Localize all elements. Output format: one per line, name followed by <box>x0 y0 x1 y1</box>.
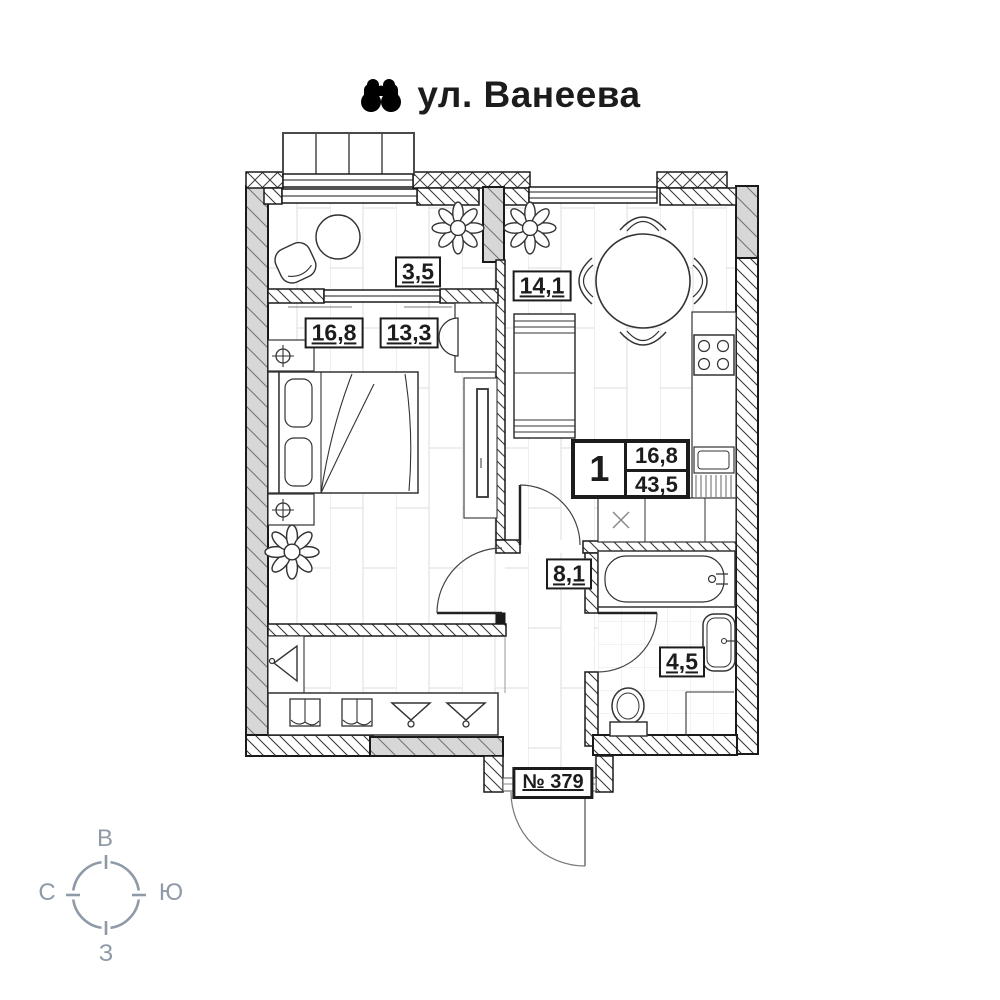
closet-mirror <box>268 636 304 693</box>
dining-table <box>596 234 690 328</box>
page-title-row: ул. Ванеева <box>0 74 1000 116</box>
floor-plan-drawing <box>0 0 1000 1000</box>
bathtub-tap <box>709 576 716 583</box>
tv <box>477 389 488 497</box>
entrance-door <box>511 792 585 866</box>
right-wall <box>736 258 758 754</box>
floor-plan-page: { "header": { "title": "ул. Ванеева", "i… <box>0 0 1000 1000</box>
room-label-hall: 8,1 <box>546 558 592 589</box>
plant-icon <box>504 202 556 254</box>
binoculars-icon <box>359 77 403 113</box>
compass-letter-top: В <box>97 825 113 853</box>
compass-letter-bottom: З <box>99 940 114 968</box>
bed <box>268 372 418 493</box>
bathroom-sink <box>703 614 736 671</box>
apartment-info-box: 1 16,8 43,5 <box>571 439 690 499</box>
room-label-main: 16,8 <box>305 317 364 348</box>
bathtub <box>598 551 735 607</box>
apartment-number-label: № 379 <box>512 767 593 799</box>
left-wall <box>246 186 268 756</box>
kitchen-lower-cabinets <box>598 498 736 542</box>
tv-unit <box>464 378 497 518</box>
loggia-table <box>316 215 360 259</box>
plant-icon <box>432 202 484 254</box>
desk <box>455 303 496 372</box>
toilet <box>610 688 647 736</box>
pillar <box>483 187 504 262</box>
compass-letter-right: Ю <box>159 879 183 907</box>
living-area: 16,8 <box>627 443 686 472</box>
folded-clothes-icon <box>342 699 372 726</box>
room-label-loggia: 3,5 <box>395 256 441 287</box>
pillow <box>285 379 312 427</box>
rooms-count: 1 <box>575 443 627 495</box>
compass-rose <box>66 855 146 935</box>
right-wall-gray <box>736 186 758 258</box>
kitchen-sofa <box>514 314 575 438</box>
page-title: ул. Ванеева <box>417 74 640 116</box>
pillow <box>285 438 312 486</box>
room-label-bathroom: 4,5 <box>659 646 705 677</box>
plant-icon <box>265 525 319 579</box>
room-label-alt: 13,3 <box>380 317 439 348</box>
kitchen-counter <box>692 312 736 499</box>
folded-clothes-icon <box>290 699 320 726</box>
wardrobe <box>268 693 498 735</box>
stove <box>694 335 734 375</box>
room-label-kitchen: 14,1 <box>513 270 572 301</box>
total-area: 43,5 <box>627 472 686 498</box>
compass-letter-left: С <box>38 879 55 907</box>
corridor-wall <box>268 624 506 636</box>
kitchen-window <box>529 187 657 203</box>
